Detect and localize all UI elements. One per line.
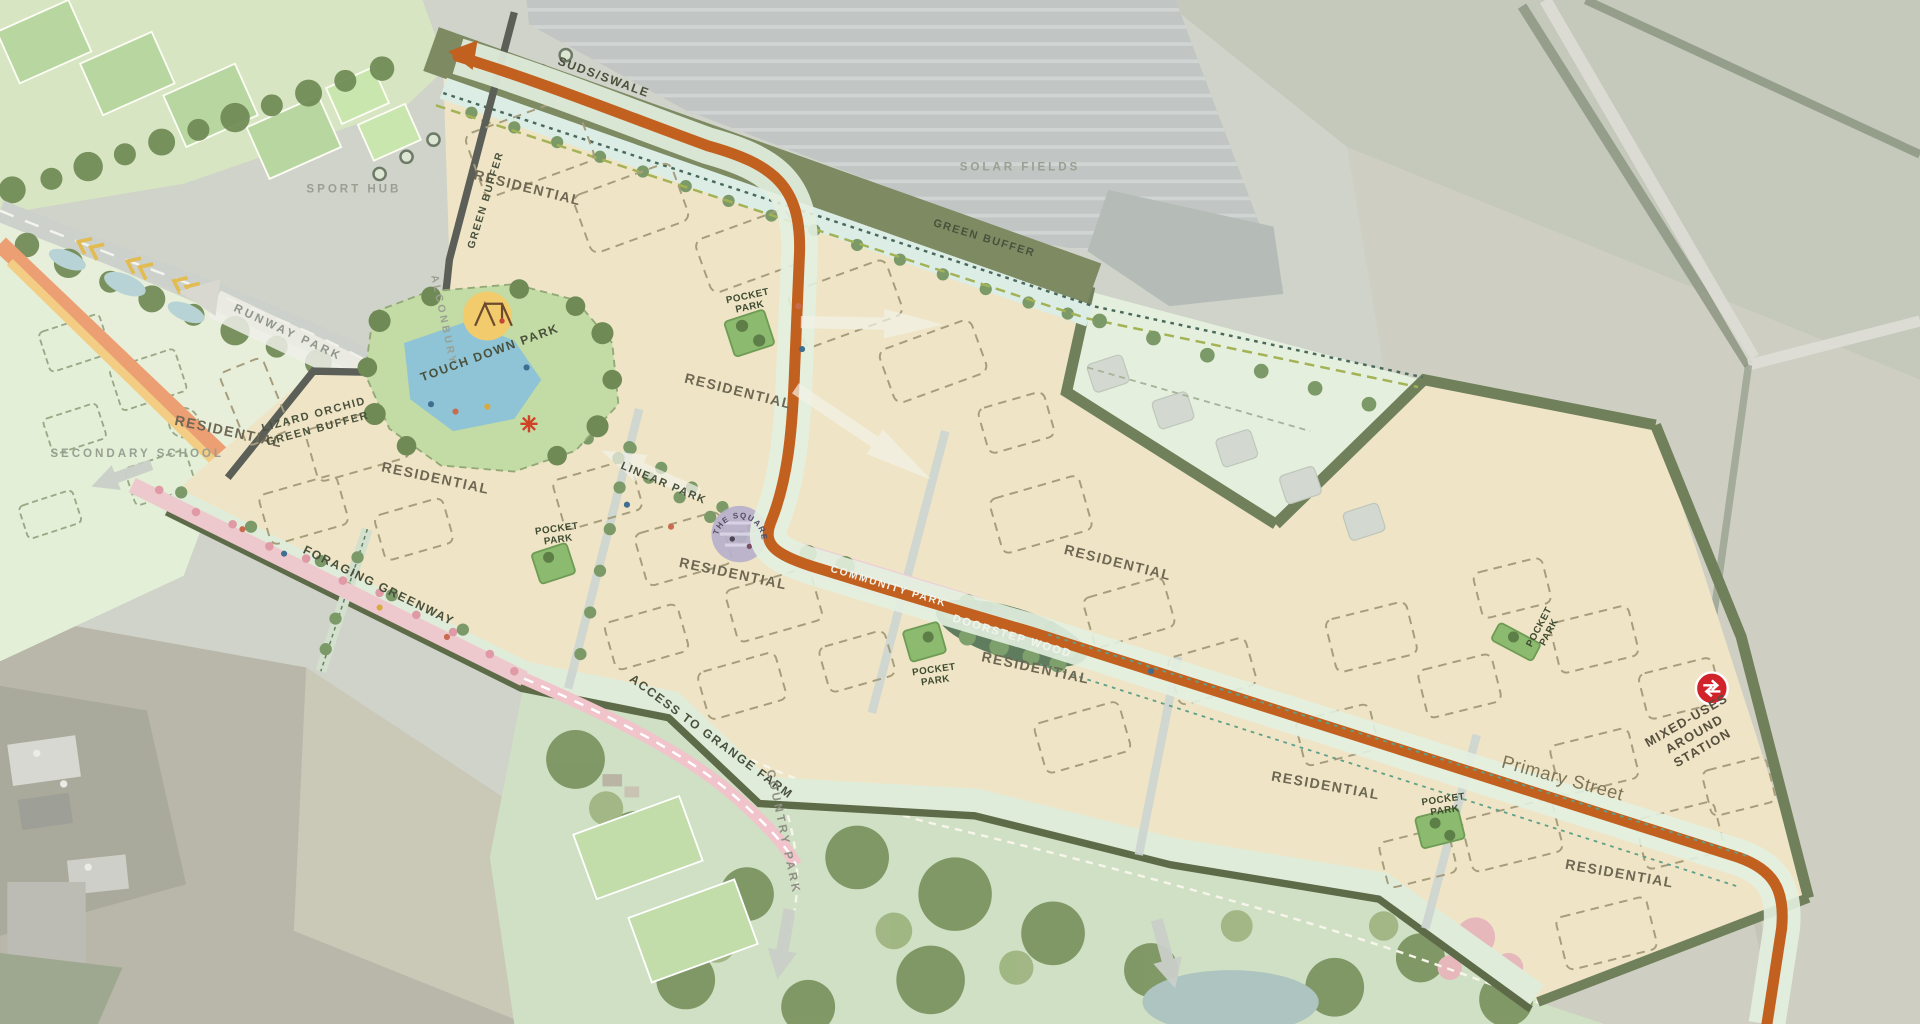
masterplan-map: RESIDENTIAL RESIDENTIAL RESIDENTIAL RESI… [0,0,1920,1024]
play-area-icon [463,292,512,341]
cyclist-dot [795,303,801,309]
label-sport-hub: SPORT HUB [306,182,401,195]
cyclist-dot [1148,668,1154,674]
label-solar-fields: SOLAR FIELDS [960,160,1081,173]
label-secondary-school: SECONDARY SCHOOL [50,447,224,460]
cyclist-dot [799,346,805,352]
asterisk-icon [520,415,537,432]
